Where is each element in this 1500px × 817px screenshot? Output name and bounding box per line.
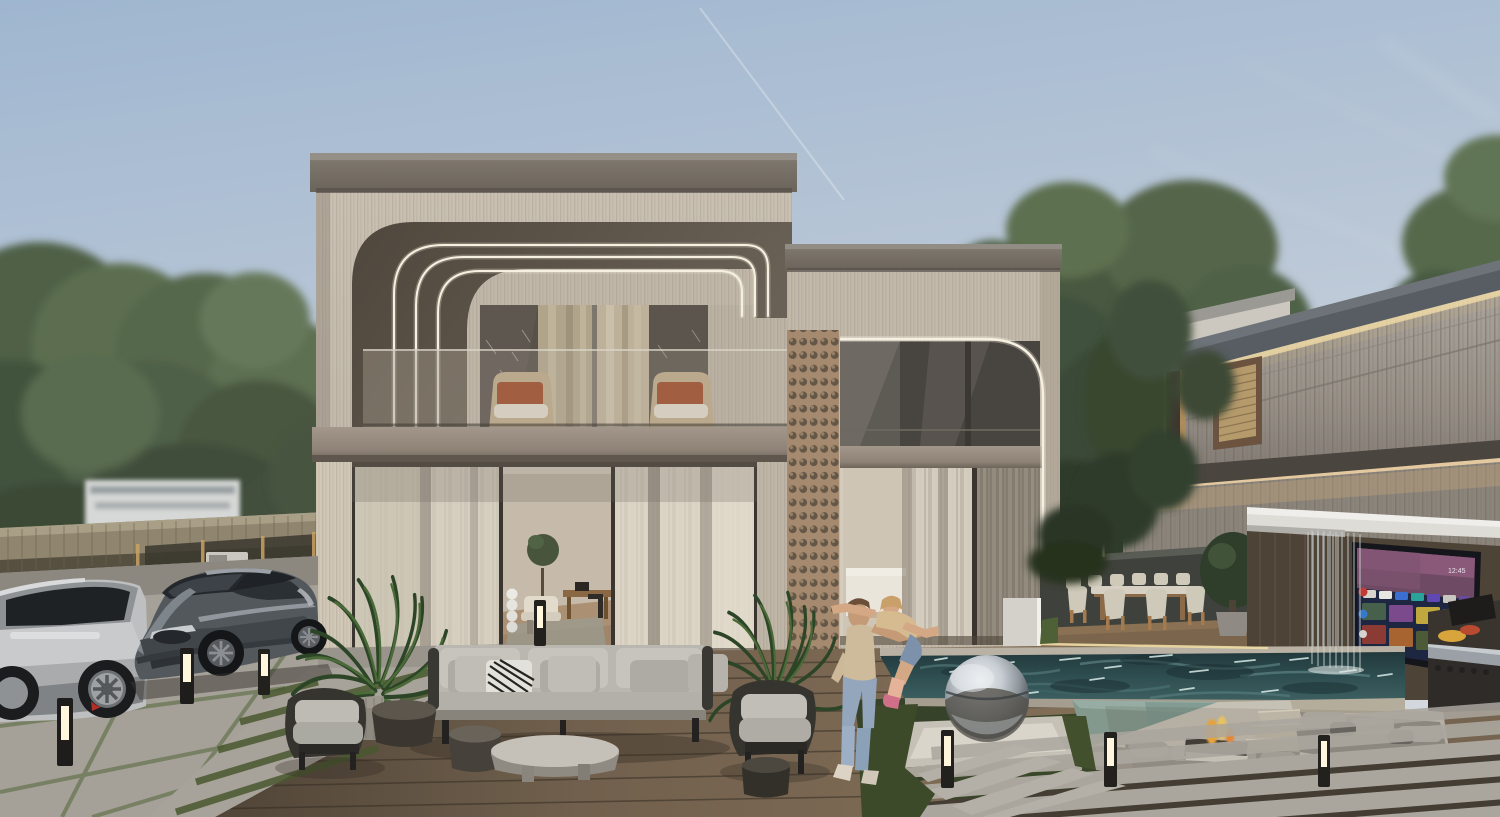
svg-text:12:45: 12:45 (1448, 568, 1466, 575)
